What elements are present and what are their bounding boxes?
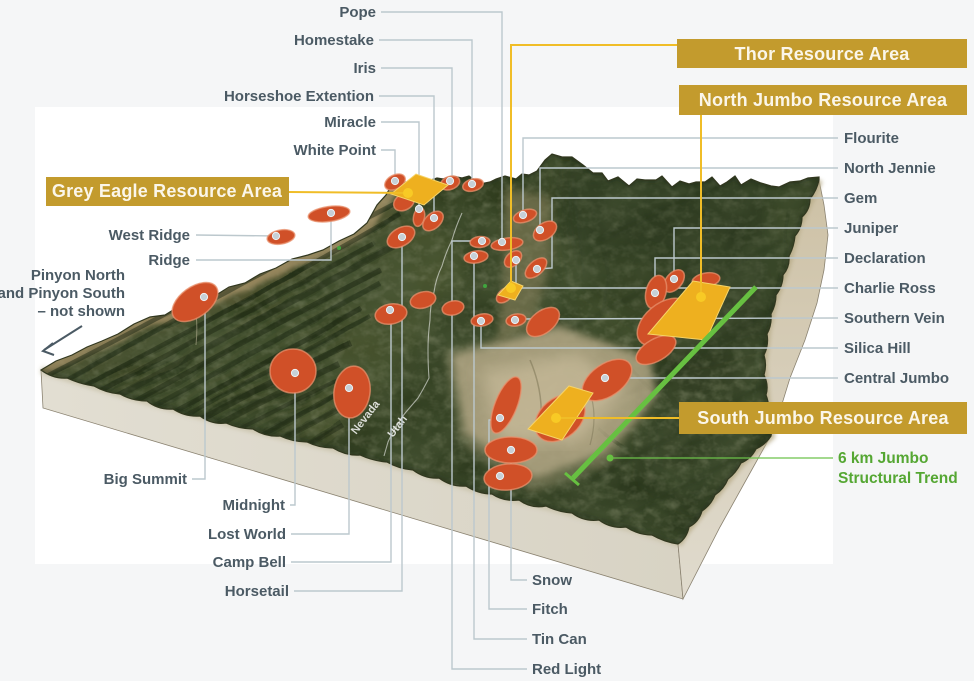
svg-text:Miracle: Miracle	[324, 114, 376, 131]
svg-text:and Pinyon South: and Pinyon South	[0, 285, 125, 302]
svg-text:– not shown: – not shown	[38, 303, 126, 320]
svg-text:Charlie Ross: Charlie Ross	[844, 280, 936, 297]
svg-text:White Point: White Point	[294, 142, 377, 159]
svg-text:Central Jumbo: Central Jumbo	[844, 370, 949, 387]
svg-text:Gem: Gem	[844, 190, 877, 207]
svg-text:Red Light: Red Light	[532, 661, 601, 678]
svg-text:Silica Hill: Silica Hill	[844, 340, 911, 357]
svg-text:Grey Eagle Resource Area: Grey Eagle Resource Area	[52, 181, 283, 201]
svg-text:Thor Resource Area: Thor Resource Area	[735, 44, 911, 64]
svg-text:Fitch: Fitch	[532, 601, 568, 618]
svg-text:Flourite: Flourite	[844, 130, 899, 147]
svg-text:Camp Bell: Camp Bell	[213, 554, 286, 571]
svg-text:North Jumbo Resource Area: North Jumbo Resource Area	[699, 90, 948, 110]
svg-text:Pinyon North: Pinyon North	[31, 267, 125, 284]
svg-text:Pope: Pope	[339, 4, 376, 21]
svg-text:Midnight: Midnight	[223, 497, 285, 514]
svg-text:Lost World: Lost World	[208, 526, 286, 543]
svg-text:Juniper: Juniper	[844, 220, 898, 237]
svg-text:6 km Jumbo: 6 km Jumbo	[838, 450, 928, 467]
svg-text:Homestake: Homestake	[294, 32, 374, 49]
svg-text:Snow: Snow	[532, 572, 572, 589]
svg-text:Declaration: Declaration	[844, 250, 926, 267]
svg-text:Tin Can: Tin Can	[532, 631, 587, 648]
svg-text:North Jennie: North Jennie	[844, 160, 936, 177]
svg-text:South Jumbo Resource Area: South Jumbo Resource Area	[697, 408, 949, 428]
svg-text:Iris: Iris	[353, 60, 376, 77]
svg-text:Structural Trend: Structural Trend	[838, 470, 958, 487]
svg-text:Ridge: Ridge	[148, 252, 190, 269]
svg-text:Southern Vein: Southern Vein	[844, 310, 945, 327]
svg-text:Horseshoe Extention: Horseshoe Extention	[224, 88, 374, 105]
svg-text:Big Summit: Big Summit	[104, 471, 187, 488]
svg-text:West Ridge: West Ridge	[109, 227, 190, 244]
svg-text:Horsetail: Horsetail	[225, 583, 289, 600]
